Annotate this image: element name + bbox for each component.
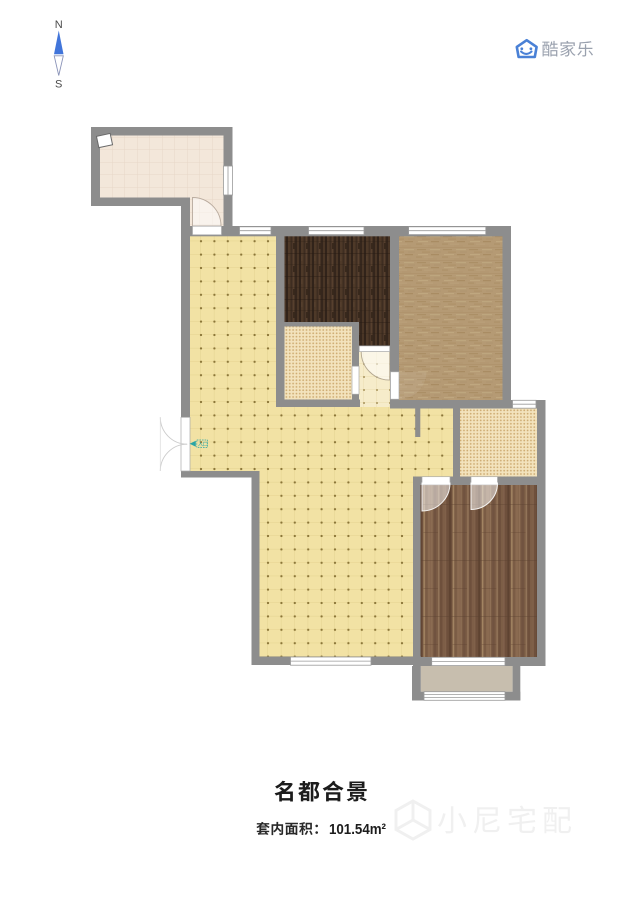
svg-text:S: S [55,79,62,91]
svg-text:N: N [55,19,63,31]
svg-text:101.54m²: 101.54m² [329,821,386,838]
